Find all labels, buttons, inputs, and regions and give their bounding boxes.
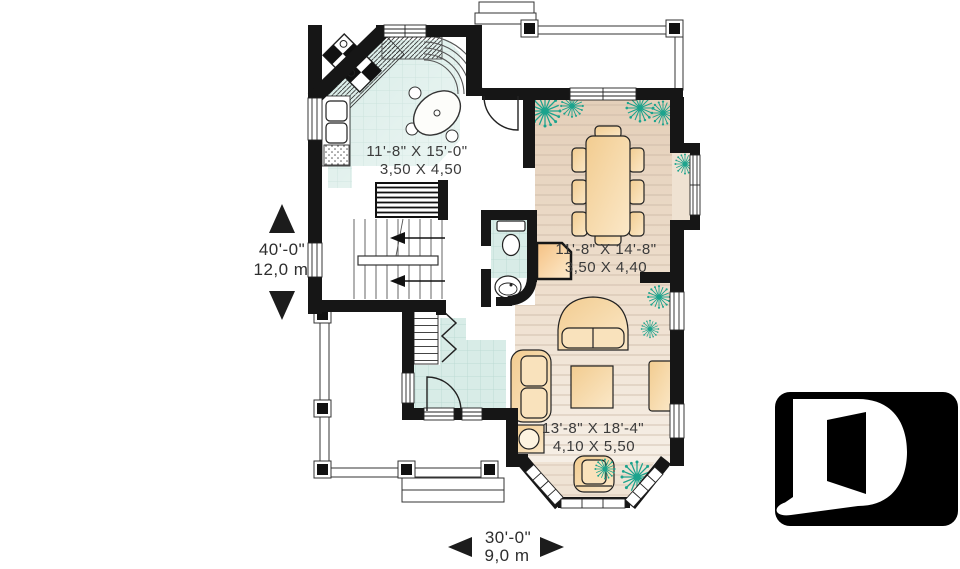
width-dimension: 30'-0" 9,0 m: [448, 528, 564, 565]
plant-icon: [641, 320, 659, 338]
dining-chair: [572, 212, 587, 236]
window: [402, 373, 414, 403]
deck-door: [484, 96, 518, 130]
living-size-imperial: 13'-8" X 18'-4": [542, 420, 644, 437]
porch-column: [481, 461, 498, 478]
dishwasher: [324, 145, 349, 165]
window: [462, 408, 482, 420]
window: [690, 155, 700, 215]
plant-icon: [647, 285, 671, 309]
dining-chair: [572, 180, 587, 204]
width-imperial-label: 30'-0": [485, 528, 531, 547]
depth-metric-label: 12,0 m: [254, 260, 309, 279]
side-table-lamp: [514, 425, 544, 453]
dining-chair: [572, 148, 587, 172]
window: [424, 408, 454, 420]
up-arrow-icon: [269, 204, 295, 233]
width-metric-label: 9,0 m: [484, 546, 529, 565]
porch-column: [314, 400, 331, 417]
depth-dimension: 40'-0" 12,0 m: [254, 204, 309, 320]
floor-plan-drawing: 40'-0" 12,0 m 30'-0" 9,0 m 11'-8" X 15'-…: [0, 0, 960, 569]
bay-window: [561, 499, 625, 508]
d-logo-icon: [775, 392, 958, 526]
dining-size-metric: 3,50 X 4,40: [565, 259, 647, 276]
floor-plan-canvas: 40'-0" 12,0 m 30'-0" 9,0 m 11'-8" X 15'-…: [0, 0, 960, 569]
rear-deck: [475, 2, 683, 90]
dining-chair: [629, 180, 644, 204]
toilet-bowl: [503, 235, 520, 256]
window: [670, 292, 684, 330]
kitchen-size-metric: 3,50 X 4,50: [380, 161, 462, 178]
dining-chair: [629, 212, 644, 236]
console-table: [649, 361, 673, 411]
porch-steps: [402, 478, 504, 490]
window: [308, 243, 322, 277]
down-arrow-icon: [269, 291, 295, 320]
left-arrow-icon: [448, 537, 472, 557]
window: [384, 25, 426, 37]
porch-column: [314, 461, 331, 478]
window: [308, 98, 322, 140]
kitchen-size-imperial: 11'-8" X 15'-0": [366, 143, 467, 160]
living-size-metric: 4,10 X 5,50: [553, 438, 635, 455]
depth-imperial-label: 40'-0": [259, 240, 305, 259]
toilet-tank: [497, 221, 525, 231]
right-arrow-icon: [540, 537, 564, 557]
dining-chair: [629, 148, 644, 172]
deck-steps: [479, 2, 534, 13]
plant-icon: [594, 458, 615, 479]
dining-table: [586, 136, 630, 236]
staircase: [354, 183, 445, 299]
dining-size-imperial: 11'-8" X 14'-8": [555, 241, 656, 258]
deck-rail: [533, 26, 676, 34]
deck-post: [521, 20, 538, 37]
deck-post: [666, 20, 683, 37]
stair-handrail: [358, 256, 438, 265]
window: [570, 88, 636, 100]
porch-edge: [320, 312, 329, 468]
coffee-table: [571, 366, 613, 408]
porch-column: [398, 461, 415, 478]
window: [670, 404, 684, 438]
loveseat: [558, 297, 628, 350]
